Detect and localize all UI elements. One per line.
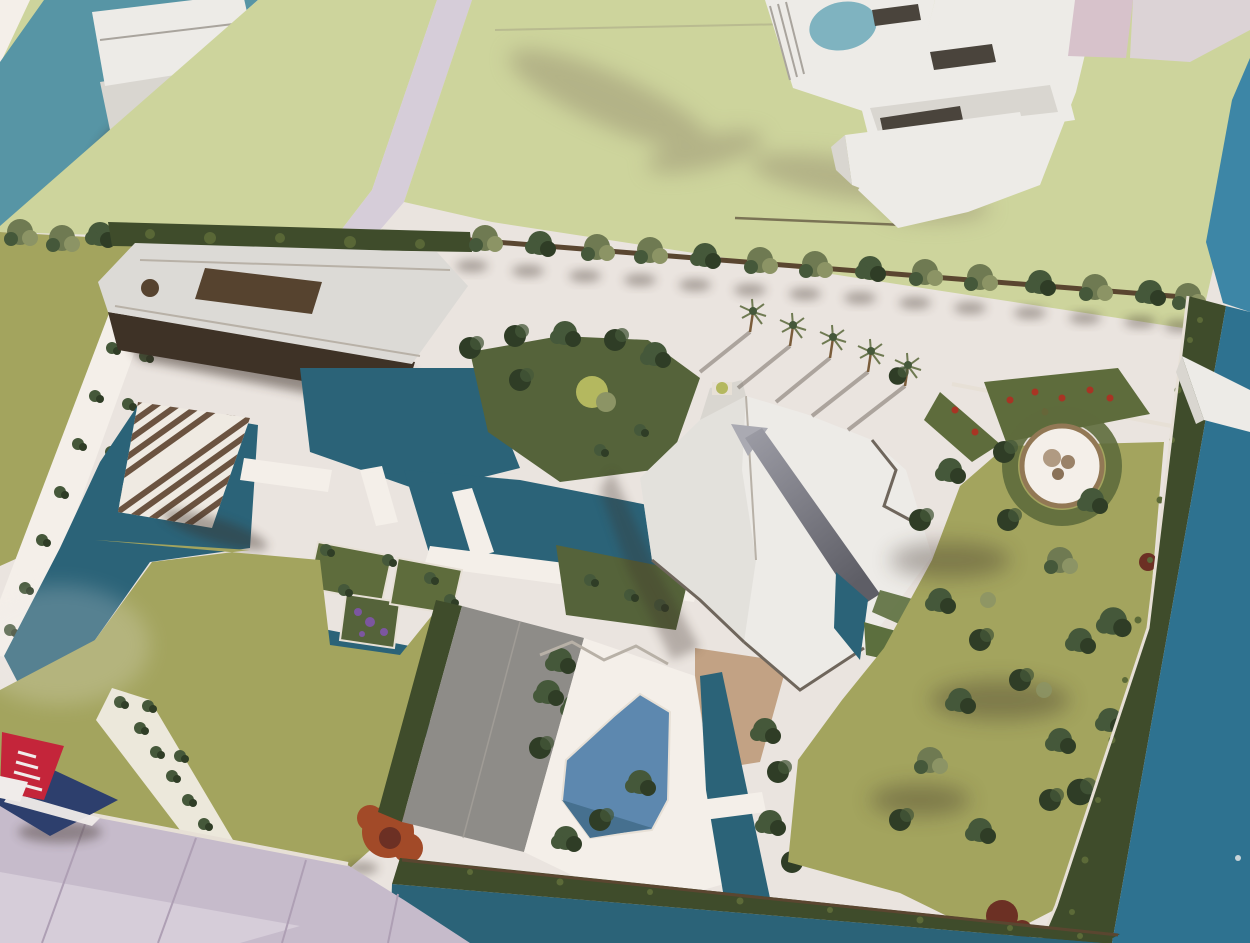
pink-block bbox=[1068, 0, 1133, 58]
roof-sphere bbox=[141, 279, 159, 297]
site-model-photo bbox=[0, 0, 1250, 943]
